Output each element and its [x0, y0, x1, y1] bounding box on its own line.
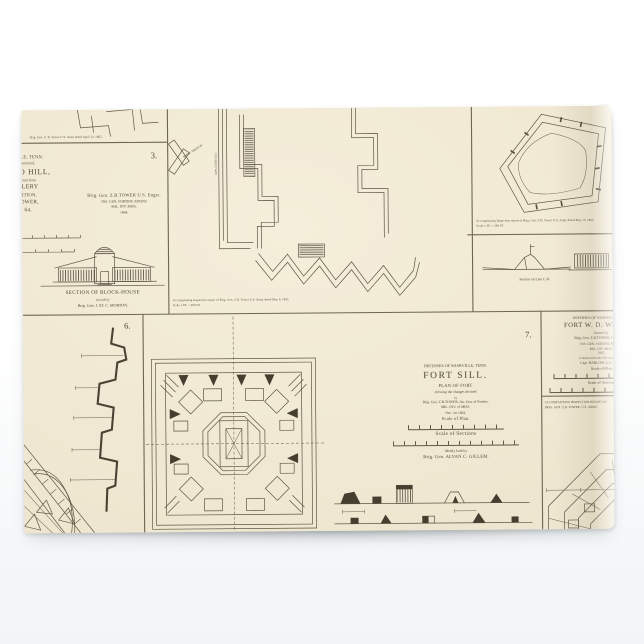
octagon-fort-fragment-drawing — [546, 454, 615, 534]
whipple-sections-scalebar — [550, 388, 615, 394]
pentagon-fort-caption: Accompanying Inspection report of Brig. … — [476, 218, 610, 228]
whipple-pentagon-plan-drawing — [499, 114, 606, 213]
map-plate-drawing — [21, 106, 614, 534]
casino-hill-credit-block: Brig. Gen. Z.B.TOWER U.S. Engrs. INS. GE… — [82, 192, 166, 216]
whipple-title-block: DEFENSES OF NASHVILLE, TENN. FORT W. D. … — [545, 315, 615, 394]
center-fort-plan-drawing — [168, 107, 420, 297]
fort-sill-sections-drawing — [334, 484, 532, 524]
fort-sill-plan-scalebar — [408, 425, 504, 431]
fort-sill-title-block: DEFENSES OF NASHVILLE, TENN. FORT SILL. … — [383, 362, 528, 461]
panel-rules — [21, 106, 614, 534]
product-photo-scene: Brig. Gen. Z. B. Tower U.S. Army dated A… — [0, 0, 644, 644]
section-cd-drawing — [482, 244, 611, 271]
whipple-footnote: ACCOMPANYING INSPECTION REPORT OF BRIG. … — [545, 399, 615, 409]
center-fort-caption: Accompanying Inspection report of Brig. … — [173, 297, 333, 307]
whipple-plan-scalebar — [553, 374, 614, 380]
panel-number-3: 3. — [151, 149, 157, 162]
blockhouse-caption: SECTION OF BLOCK-HOUSE as built by Brig.… — [51, 289, 155, 309]
blockhouse-section-drawing — [40, 247, 164, 286]
panel-number-7: 7. — [525, 328, 531, 341]
covered-way-label: COVERED WAY — [213, 153, 218, 176]
fort-sill-plan-drawing — [145, 316, 327, 532]
casino-hill-scalebars — [22, 235, 80, 252]
fort-sill-sections-scalebar — [393, 440, 519, 446]
greeting-card-front: Brig. Gen. Z. B. Tower U.S. Army dated A… — [21, 106, 614, 534]
section-cd-caption: Section on Line C-D. — [485, 277, 585, 283]
profile-panel-drawing — [21, 328, 127, 534]
panel-number-6: 6. — [124, 319, 130, 332]
sliver-plan-fragment — [77, 109, 158, 137]
